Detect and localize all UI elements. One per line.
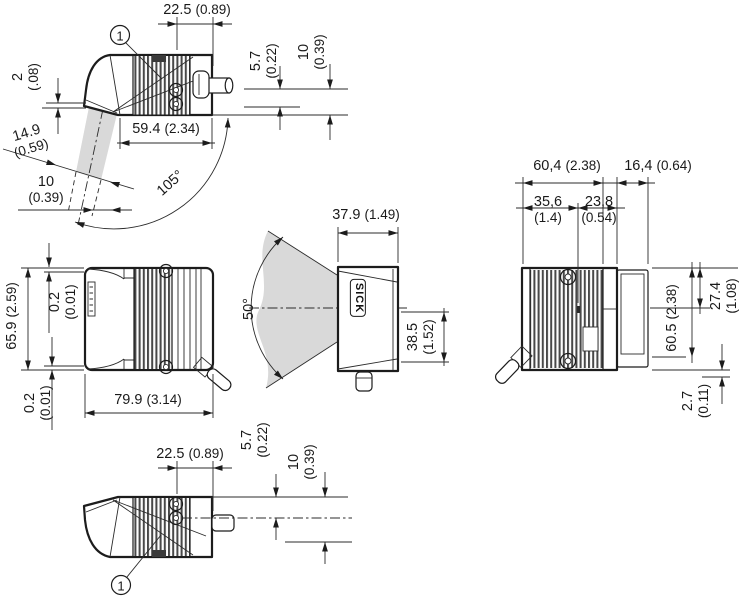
dim-bottom-axis-10-inch: (0.39) xyxy=(303,444,318,479)
dim-top-width-65-9-inch: (2.59) xyxy=(4,282,19,317)
dim-bottom-axis-5-7: 5.7(0.22) xyxy=(240,422,270,457)
dim-bottom-width-22-5-inch: (0.89) xyxy=(188,446,223,461)
dim-top-gap-0-2-front-mm: 0.2 xyxy=(48,284,64,319)
dim-front-angle-50-value: 50° xyxy=(241,298,257,320)
dim-rear-width-60-4-inch: (2.38) xyxy=(565,158,600,173)
dim-side-axis-10: 10(0.39) xyxy=(297,34,327,69)
dim-side-axis-10-inch: (0.39) xyxy=(313,34,328,69)
sick-logo: SICK xyxy=(350,279,366,317)
dim-front-height-38-5: 38.5(1.52) xyxy=(406,319,436,354)
callout-1-side: 1 xyxy=(116,28,123,43)
light-beam-side xyxy=(76,107,117,180)
dim-bottom-axis-5-7-mm: 5.7 xyxy=(240,422,256,457)
dim-bottom-width-22-5-mm: 22.5 xyxy=(156,446,184,462)
dim-side-axis-5-7-inch: (0.22) xyxy=(265,43,280,78)
dim-rear-width-23-8-mm: 23,8 xyxy=(581,195,616,211)
dim-side-length-59-4-inch: (2.34) xyxy=(164,121,199,136)
dim-side-width-22-5-inch: (0.89) xyxy=(195,2,230,17)
dim-side-edge-2-inch: (.08) xyxy=(27,63,42,91)
dim-side-width-22-5: 22.5(0.89) xyxy=(163,3,231,19)
callout-1-bottom: 1 xyxy=(117,578,124,593)
dim-rear-height-60-5-inch: (2.38) xyxy=(664,284,679,319)
drawing-linework xyxy=(0,0,749,600)
dim-rear-height-27-4-inch: (1.08) xyxy=(725,278,740,313)
dim-rear-height-60-5-mm: 60.5 xyxy=(664,324,680,352)
dim-rear-width-23-8-inch: (0.54) xyxy=(581,211,616,226)
dim-rear-width-60-4: 60,4(2.38) xyxy=(533,159,601,175)
dim-rear-width-16-4: 16,4(0.64) xyxy=(624,159,692,175)
cooling-fins-top xyxy=(134,269,172,369)
view-bottom xyxy=(84,461,352,595)
dim-front-height-38-5-inch: (1.52) xyxy=(422,319,437,354)
dim-rear-width-60-4-mm: 60,4 xyxy=(533,158,561,174)
dim-rear-cable-2-7-mm: 2.7 xyxy=(681,384,697,418)
dim-rear-cable-2-7: 2.7(0.11) xyxy=(681,384,711,418)
dim-side-window-offset-10: 10(0.39) xyxy=(28,175,63,205)
dim-side-window-offset-10-inch: (0.39) xyxy=(28,191,63,206)
dim-rear-height-27-4-mm: 27.4 xyxy=(709,278,725,313)
connector-bottom xyxy=(212,515,234,531)
dim-side-length-59-4: 59.4(2.34) xyxy=(132,122,200,138)
dim-front-width-37-9-inch: (1.49) xyxy=(364,207,399,222)
dim-rear-width-35-6-inch: (1.4) xyxy=(534,211,562,226)
dim-rear-height-60-5: 60.5(2.38) xyxy=(665,284,681,352)
dim-bottom-axis-10-mm: 10 xyxy=(287,444,303,479)
dim-rear-width-16-4-mm: 16,4 xyxy=(624,158,652,174)
dim-rear-width-23-8: 23,8(0.54) xyxy=(581,195,616,225)
dim-top-gap-0-2-front: 0.2(0.01) xyxy=(48,284,78,319)
dim-side-edge-2: 2(.08) xyxy=(11,63,41,91)
dim-bottom-width-22-5: 22.5(0.89) xyxy=(156,447,224,463)
dim-top-gap-0-2-rear-mm: 0.2 xyxy=(23,385,39,420)
dim-side-axis-10-mm: 10 xyxy=(297,34,313,69)
connector-front xyxy=(356,372,372,391)
dim-top-length-79-9: 79.9(3.14) xyxy=(114,393,182,409)
dim-top-width-65-9-mm: 65.9 xyxy=(4,322,20,350)
light-beam-front xyxy=(256,231,337,388)
dim-side-axis-5-7-mm: 5.7 xyxy=(249,43,265,78)
dim-rear-height-27-4: 27.4(1.08) xyxy=(709,278,739,313)
dim-top-length-79-9-inch: (3.14) xyxy=(146,392,181,407)
dim-rear-width-16-4-inch: (0.64) xyxy=(656,158,691,173)
housing-front xyxy=(338,267,398,371)
dim-bottom-axis-10: 10(0.39) xyxy=(287,444,317,479)
dim-side-window-offset-10-mm: 10 xyxy=(28,175,63,191)
dim-side-edge-2-mm: 2 xyxy=(11,63,27,91)
dim-front-height-38-5-mm: 38.5 xyxy=(406,319,422,354)
connector-block-rear xyxy=(617,270,648,367)
dim-rear-width-35-6: 35,6(1.4) xyxy=(534,195,562,225)
dim-side-axis-5-7: 5.7(0.22) xyxy=(249,43,279,78)
dim-top-width-65-9: 65.9(2.59) xyxy=(5,282,21,350)
dim-front-width-37-9: 37.9(1.49) xyxy=(332,208,400,224)
dim-top-gap-0-2-rear-inch: (0.01) xyxy=(39,385,54,420)
dim-top-gap-0-2-rear: 0.2(0.01) xyxy=(23,385,53,420)
dim-top-length-79-9-mm: 79.9 xyxy=(114,392,142,408)
dim-front-width-37-9-mm: 37.9 xyxy=(332,207,360,223)
dim-side-length-59-4-mm: 59.4 xyxy=(132,121,160,137)
view-front xyxy=(249,227,449,391)
dim-rear-cable-2-7-inch: (0.11) xyxy=(697,384,712,418)
dim-bottom-axis-5-7-inch: (0.22) xyxy=(256,422,271,457)
dim-top-gap-0-2-front-inch: (0.01) xyxy=(64,284,79,319)
dimension-drawing: 22.5(0.89) 1 2(.08) 5.7(0.22) 10(0.39) 5… xyxy=(0,0,749,600)
dim-front-angle-50: 50° xyxy=(242,298,258,320)
dim-rear-width-35-6-mm: 35,6 xyxy=(534,195,562,211)
dim-side-width-22-5-mm: 22.5 xyxy=(163,2,191,18)
